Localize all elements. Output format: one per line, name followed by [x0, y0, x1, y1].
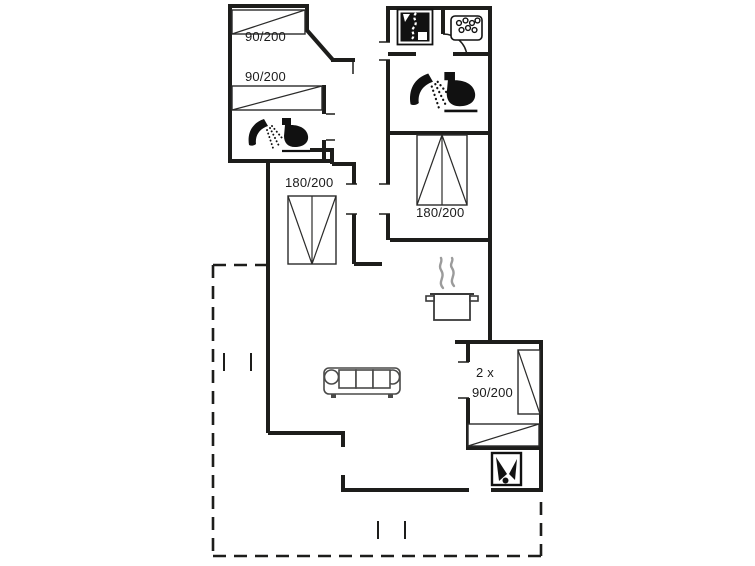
whirlpool-icon	[451, 16, 482, 40]
bed-size-label: 2 x	[476, 366, 494, 380]
bed-size-label: 180/200	[285, 176, 333, 190]
bathroom-left	[249, 118, 310, 151]
toilet-icon	[444, 72, 477, 111]
floor-plan-drawing	[0, 0, 755, 566]
double-bed-icon	[288, 196, 336, 264]
chamfer-wall	[305, 28, 333, 60]
single-bed-icon	[232, 86, 322, 110]
toilet-icon	[282, 118, 310, 151]
washing-machine-icon	[398, 10, 433, 45]
bed-size-label: 90/200	[472, 386, 513, 400]
bed-size-label: 90/200	[245, 70, 286, 84]
shower-icon	[410, 74, 449, 108]
shower-icon	[249, 119, 282, 148]
floor-plan: 90/200 90/200 180/200 180/200 2 x 90/200	[0, 0, 755, 566]
wood-stove-icon	[492, 453, 521, 485]
bed-size-label: 90/200	[245, 30, 286, 44]
single-bed-icon	[518, 350, 540, 414]
sofa-icon	[324, 368, 400, 398]
bed-size-label: 180/200	[416, 206, 464, 220]
single-bed-icon	[468, 424, 539, 446]
cooking-pot-steam-icon	[426, 258, 478, 320]
double-bed-icon	[417, 135, 467, 205]
bathroom-right	[410, 72, 477, 111]
